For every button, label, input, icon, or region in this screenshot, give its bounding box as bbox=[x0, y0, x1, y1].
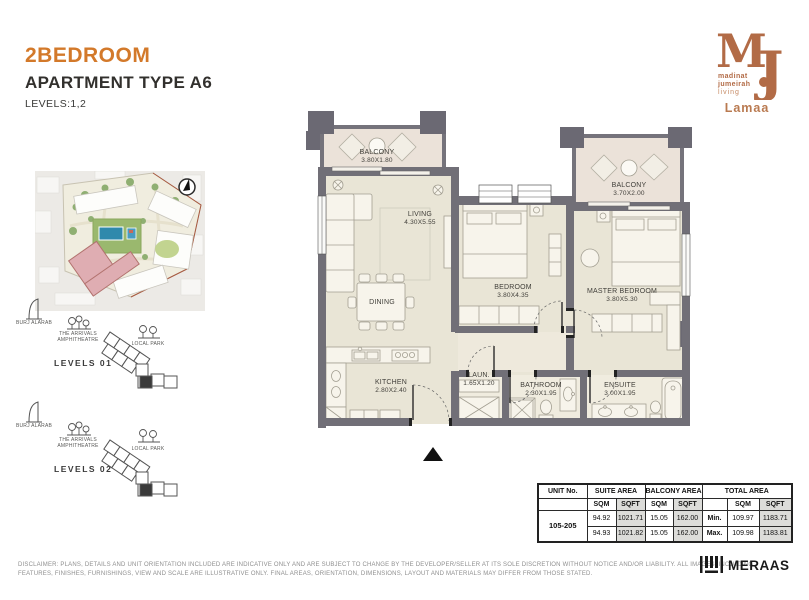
site-map bbox=[35, 171, 205, 311]
bedroom-lamp bbox=[534, 207, 540, 213]
page-title: 2BEDROOM bbox=[25, 44, 150, 68]
bedroom-wardrobe bbox=[459, 306, 539, 324]
balcony-sqm-max: 15.05 bbox=[645, 526, 673, 542]
col-header-balcony: BALCONY AREA bbox=[645, 484, 702, 498]
room-label-bedroom: BEDROOM 3.80X4.35 bbox=[494, 284, 532, 300]
level-2-footprint bbox=[94, 438, 186, 506]
master-bed bbox=[612, 210, 680, 286]
room-label-bathroom: BATHROOM 2.30X1.95 bbox=[520, 382, 562, 398]
bound-max: Max. bbox=[702, 526, 727, 542]
room-label-kitchen: KITCHEN 2.80X2.40 bbox=[375, 379, 407, 395]
subheader-sqm-3: SQM bbox=[727, 498, 759, 510]
total-sqm-min: 109.97 bbox=[727, 510, 759, 526]
subheader-sqft-2: SQFT bbox=[673, 498, 702, 510]
col-header-unit: UNIT No. bbox=[538, 484, 587, 498]
suite-sqft-max: 1021.82 bbox=[616, 526, 645, 542]
pool-slide bbox=[129, 230, 133, 233]
unit-highlight-2 bbox=[140, 484, 152, 496]
monogram-j: J bbox=[754, 39, 784, 100]
room-label-balcony-1: BALCONY 3.80X1.80 bbox=[360, 149, 395, 165]
room-label-dining: DINING bbox=[369, 299, 395, 307]
suite-sqft-min: 1021.71 bbox=[616, 510, 645, 526]
tagline-2: jumeirah bbox=[717, 81, 750, 88]
entrance-arrow bbox=[423, 447, 443, 461]
balcony-sqm-min: 15.05 bbox=[645, 510, 673, 526]
amphitheatre-trees-icon-2 bbox=[66, 421, 92, 437]
amphitheatre-trees-icon bbox=[66, 315, 92, 331]
unit-highlight bbox=[140, 376, 152, 388]
table-row-min: 105-205 94.92 1021.71 15.05 162.00 Min. … bbox=[538, 510, 792, 526]
burj-al-arab-icon-2 bbox=[26, 401, 42, 423]
master-lamp bbox=[600, 213, 606, 219]
subheader-blank bbox=[538, 498, 587, 510]
col-header-total: TOTAL AREA bbox=[702, 484, 792, 498]
unit-number: 105-205 bbox=[538, 510, 587, 542]
meraas-logo: MERAAS bbox=[700, 556, 790, 575]
balcony-sqft-min: 162.00 bbox=[673, 510, 702, 526]
suite-sqm-max: 94.93 bbox=[587, 526, 616, 542]
room-label-laundry: LAUN. 1.65X1.20 bbox=[463, 372, 494, 388]
balcony-sqft-max: 162.00 bbox=[673, 526, 702, 542]
subheader-blank-2 bbox=[702, 498, 727, 510]
subheader-sqm-2: SQM bbox=[645, 498, 673, 510]
master-wardrobe bbox=[592, 314, 662, 332]
meraas-bars-icon bbox=[700, 556, 723, 575]
subheader-sqft-3: SQFT bbox=[759, 498, 792, 510]
tagline-1: madinat bbox=[718, 73, 748, 80]
brochure-page: 2BEDROOM APARTMENT TYPE A6 LEVELS:1,2 M … bbox=[0, 0, 809, 600]
master-armchair bbox=[581, 249, 599, 267]
disclaimer-line-2: FEATURES, FINISHES, FURNISHINGS, VIEW AN… bbox=[18, 571, 592, 577]
suite-sqm-min: 94.92 bbox=[587, 510, 616, 526]
j-dot bbox=[759, 77, 769, 87]
landmark-label-burj-2: BURJ ALARAB bbox=[10, 423, 58, 429]
apartment-type-subtitle: APARTMENT TYPE A6 bbox=[25, 73, 212, 93]
room-label-balcony-2: BALCONY 3.70X2.00 bbox=[612, 182, 647, 198]
pool bbox=[99, 227, 123, 240]
level-1-footprint bbox=[94, 330, 186, 398]
total-sqft-max: 1183.81 bbox=[759, 526, 792, 542]
tagline-3: living bbox=[718, 89, 740, 96]
room-label-master-bedroom: MASTER BEDROOM 3.80X5.30 bbox=[587, 288, 657, 304]
subheader-sqm: SQM bbox=[587, 498, 616, 510]
room-label-ensuite: ENSUITE 3.00X1.95 bbox=[604, 382, 636, 398]
room-label-living: LIVING 4.30X5.55 bbox=[404, 211, 435, 227]
bedroom-dresser bbox=[549, 234, 561, 276]
bound-min: Min. bbox=[702, 510, 727, 526]
mj-logo-icon: M J madinat jumeirah living bbox=[700, 22, 796, 100]
total-sqft-min: 1183.71 bbox=[759, 510, 792, 526]
total-sqm-max: 109.98 bbox=[727, 526, 759, 542]
levels-line: LEVELS:1,2 bbox=[25, 98, 86, 110]
subheader-sqft: SQFT bbox=[616, 498, 645, 510]
area-table: UNIT No. SUITE AREA BALCONY AREA TOTAL A… bbox=[537, 483, 793, 543]
landmark-label-burj: BURJ ALARAB bbox=[10, 320, 58, 326]
bedroom-bed bbox=[463, 204, 527, 278]
col-header-suite: SUITE AREA bbox=[587, 484, 645, 498]
meraas-wordmark: MERAAS bbox=[728, 558, 790, 573]
disclaimer-line-1: DISCLAIMER: PLANS, DETAILS AND UNIT ORIE… bbox=[18, 562, 753, 568]
pool-2 bbox=[127, 228, 136, 239]
burj-al-arab-icon bbox=[26, 298, 42, 320]
park-lawn bbox=[155, 240, 179, 258]
